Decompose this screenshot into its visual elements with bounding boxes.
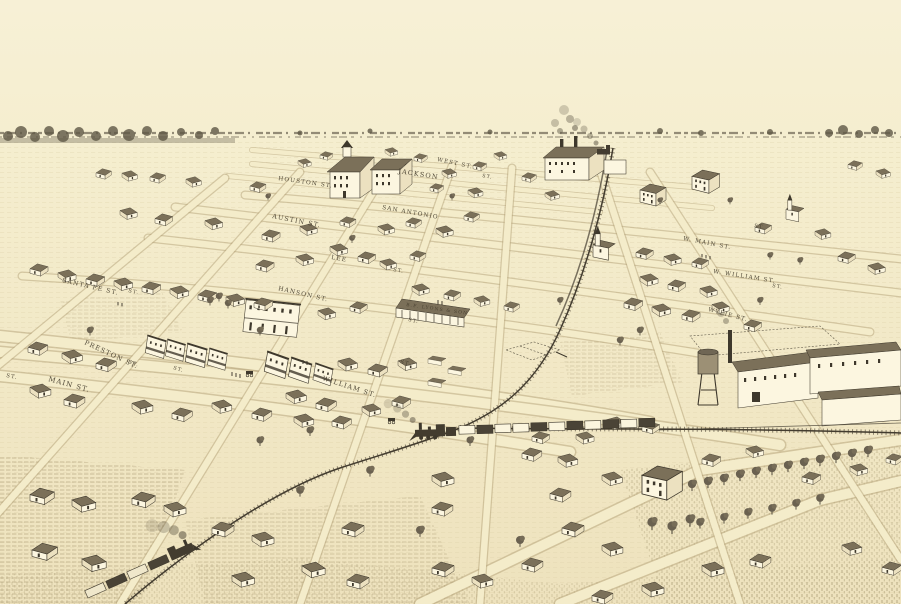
smokestack xyxy=(728,330,732,363)
lithograph-map: B.F. LYONS & SON xyxy=(0,0,901,604)
map-canvas: B.F. LYONS & SON xyxy=(0,0,901,604)
